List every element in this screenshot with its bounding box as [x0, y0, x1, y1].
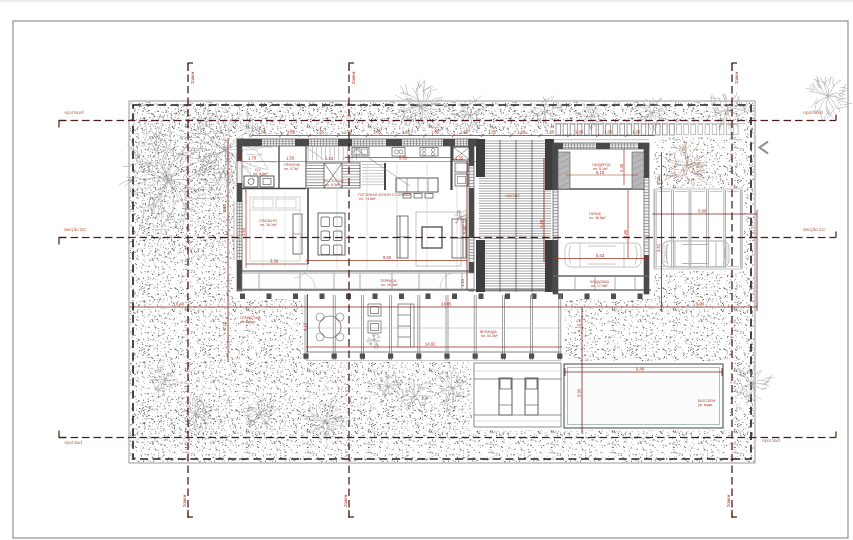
svg-text:Açot Sud: Açot Sud — [761, 438, 780, 443]
svg-text:Açot Sud: Açot Sud — [63, 440, 82, 445]
svg-text:9.40: 9.40 — [636, 367, 645, 372]
svg-text:1.85: 1.85 — [316, 129, 325, 134]
svg-text:1.35: 1.35 — [455, 156, 464, 161]
svg-text:24.05: 24.05 — [441, 302, 452, 307]
svg-text:1.85: 1.85 — [604, 129, 613, 134]
svg-text:3.90: 3.90 — [577, 388, 582, 397]
svg-text:2смеж: 2смеж — [726, 494, 731, 507]
svg-text:4.80: 4.80 — [623, 229, 628, 238]
svg-text:1.85: 1.85 — [632, 129, 641, 134]
svg-text:пл. 54.3м²: пл. 54.3м² — [481, 334, 499, 338]
svg-text:1.85: 1.85 — [488, 129, 497, 134]
svg-text:3.36: 3.36 — [270, 259, 279, 264]
svg-text:1.70: 1.70 — [248, 156, 257, 161]
svg-text:4.80: 4.80 — [539, 219, 544, 228]
svg-text:ур. воды: ур. воды — [698, 403, 713, 407]
svg-text:3.61: 3.61 — [656, 243, 661, 252]
svg-text:4.90: 4.90 — [462, 225, 467, 234]
svg-text:пл. 4.6м²: пл. 4.6м² — [253, 172, 269, 176]
svg-text:1.61: 1.61 — [460, 278, 465, 287]
svg-text:Secção CC: Secção CC — [64, 227, 87, 232]
svg-text:2смеж: 2смеж — [182, 494, 187, 507]
svg-text:5.43: 5.43 — [596, 253, 605, 258]
svg-text:4.10: 4.10 — [303, 322, 308, 331]
svg-text:4.60: 4.60 — [241, 227, 246, 236]
svg-text:1.85: 1.85 — [287, 129, 296, 134]
svg-text:ул. бетон: ул. бетон — [240, 320, 255, 324]
svg-text:14.92: 14.92 — [425, 342, 436, 347]
svg-text:1.50: 1.50 — [286, 156, 295, 161]
svg-text:2смеж: 2смеж — [734, 71, 739, 84]
svg-text:4.10: 4.10 — [222, 321, 227, 330]
svg-text:5.05: 5.05 — [399, 156, 408, 161]
svg-text:1.85: 1.85 — [575, 129, 584, 134]
svg-text:2.00: 2.00 — [222, 203, 227, 212]
svg-text:пл. 4.7м²: пл. 4.7м² — [284, 167, 300, 171]
svg-text:Açot Nord: Açot Nord — [802, 110, 823, 115]
svg-text:5.90: 5.90 — [698, 209, 707, 214]
svg-text:8.40: 8.40 — [176, 302, 185, 307]
svg-text:1.85: 1.85 — [373, 129, 382, 134]
svg-text:пл. 36.8м²: пл. 36.8м² — [589, 216, 607, 220]
svg-text:1.85: 1.85 — [402, 129, 411, 134]
svg-text:1.85: 1.85 — [517, 129, 526, 134]
svg-text:1.85: 1.85 — [258, 129, 267, 134]
svg-text:9.50: 9.50 — [383, 255, 392, 260]
svg-text:пл. 17.4м²: пл. 17.4м² — [591, 284, 609, 288]
svg-text:пл. 74.8м²: пл. 74.8м² — [359, 197, 377, 201]
svg-text:2смеж: 2смеж — [343, 494, 348, 507]
svg-text:2смеж: 2смеж — [351, 71, 356, 84]
svg-text:Açot Nord: Açot Nord — [63, 110, 84, 115]
svg-text:НАСТИЛ: НАСТИЛ — [505, 194, 520, 198]
svg-text:5.90: 5.90 — [696, 302, 705, 307]
svg-text:пл. 16.1м²: пл. 16.1м² — [260, 223, 278, 227]
svg-text:2.40: 2.40 — [619, 163, 624, 172]
svg-text:1.15: 1.15 — [325, 156, 334, 161]
svg-text:1.85: 1.85 — [460, 129, 469, 134]
svg-text:4.10: 4.10 — [577, 323, 582, 332]
svg-text:2смеж: 2смеж — [190, 71, 195, 84]
svg-text:5.10: 5.10 — [596, 170, 605, 175]
svg-text:пл. 6.5м²: пл. 6.5м² — [325, 183, 341, 187]
svg-text:1.85: 1.85 — [546, 129, 555, 134]
svg-text:1.85: 1.85 — [431, 129, 440, 134]
svg-text:пл. 16.3м²: пл. 16.3м² — [381, 283, 399, 287]
svg-text:3.00: 3.00 — [656, 176, 661, 185]
svg-text:2.40: 2.40 — [237, 153, 242, 162]
svg-text:Secção CC: Secção CC — [803, 227, 826, 232]
